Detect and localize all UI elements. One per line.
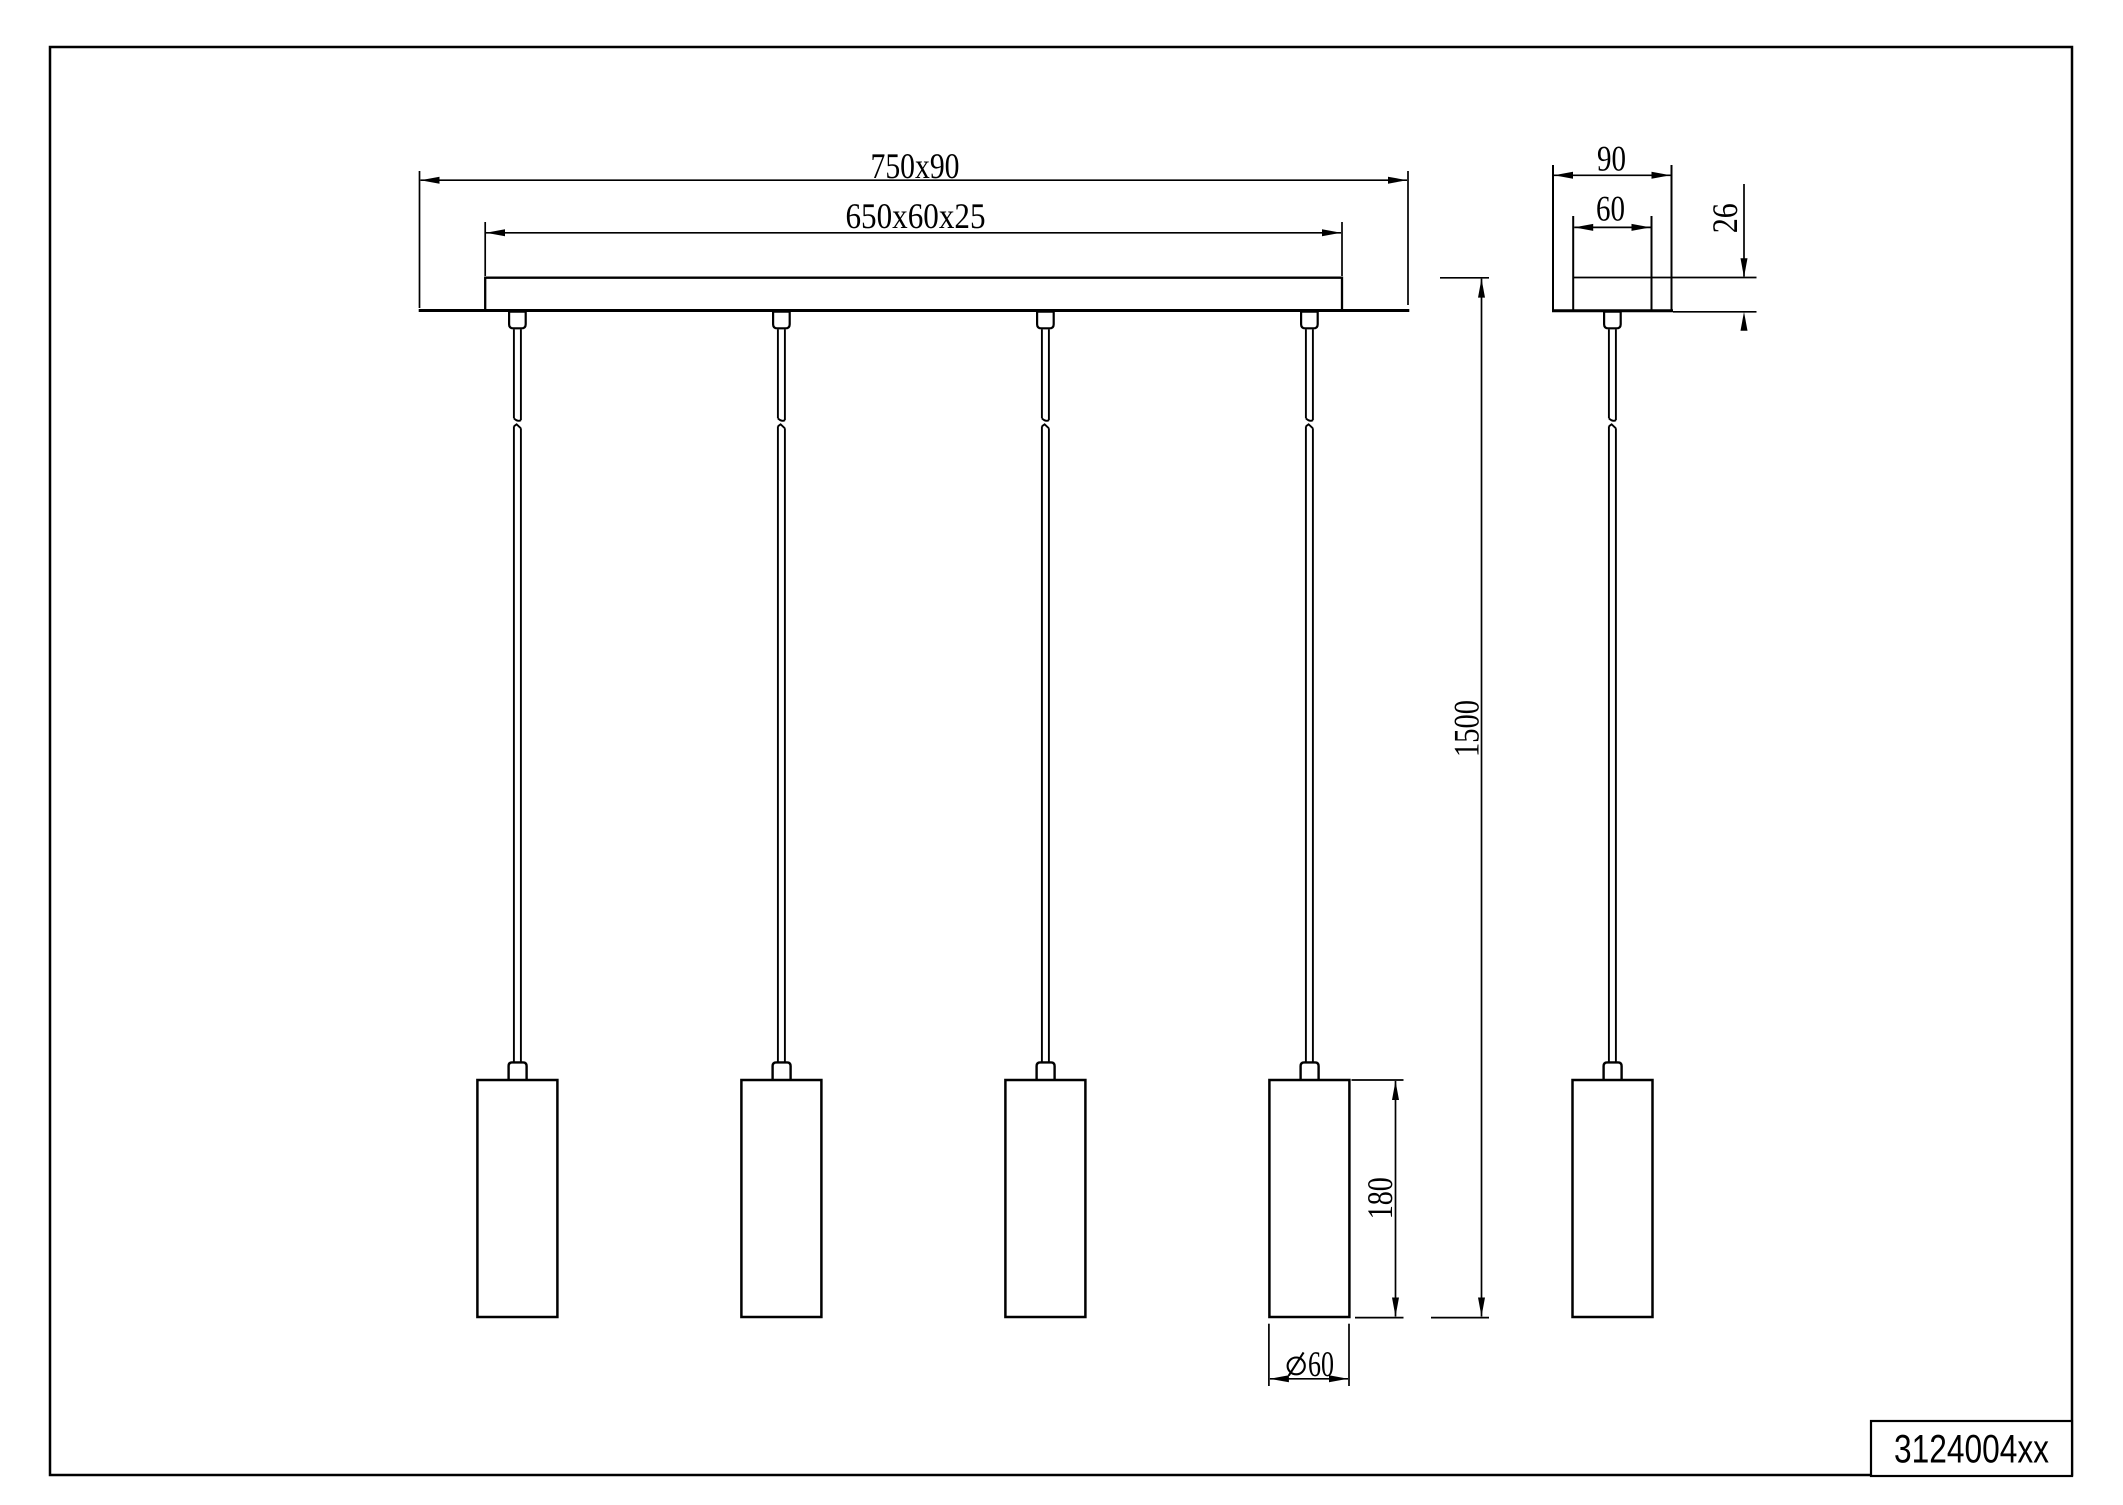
svg-text:180: 180 (1360, 1177, 1400, 1219)
svg-text:650x60x25: 650x60x25 (846, 196, 986, 236)
svg-text:1500: 1500 (1447, 700, 1487, 757)
svg-text:60: 60 (1308, 1344, 1334, 1384)
svg-text:26: 26 (1705, 203, 1745, 233)
svg-text:90: 90 (1597, 139, 1626, 179)
svg-text:3124004xx: 3124004xx (1894, 1428, 2049, 1472)
svg-text:60: 60 (1596, 189, 1625, 229)
svg-text:750x90: 750x90 (871, 146, 960, 186)
